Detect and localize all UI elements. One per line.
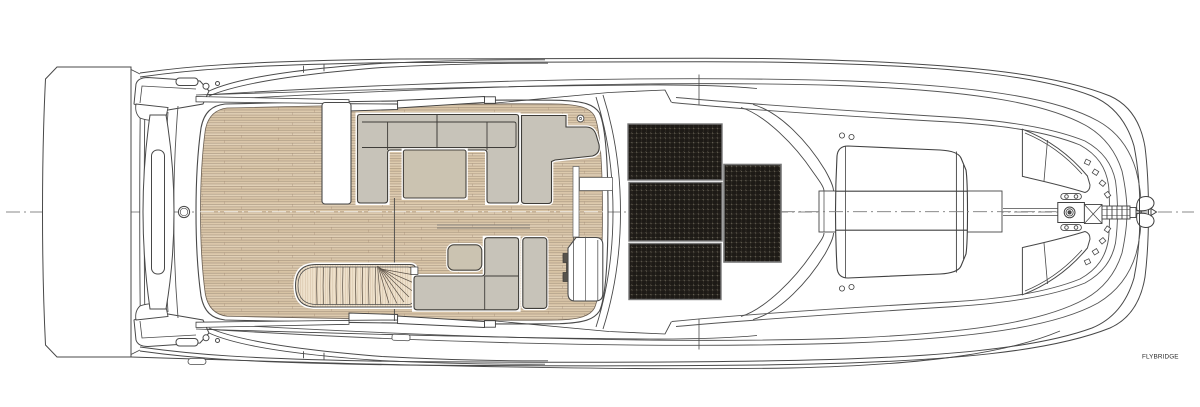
svg-text:FLYBRIDGE: FLYBRIDGE [1142,354,1179,361]
